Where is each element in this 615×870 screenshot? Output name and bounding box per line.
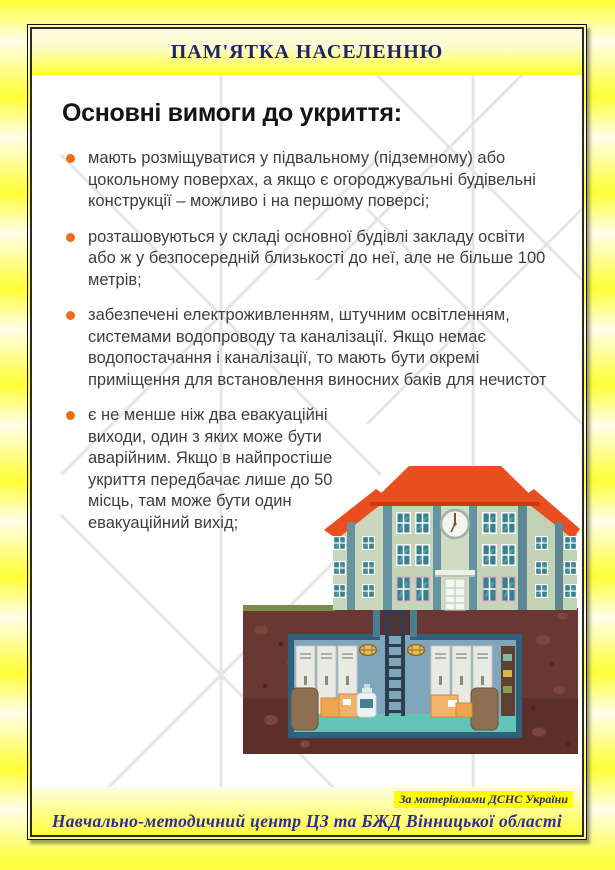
list-item-text: розташовуються у складі основної будівлі…: [88, 228, 545, 289]
header-band: ПАМ'ЯТКА НАСЕЛЕННЮ: [32, 29, 582, 75]
list-item: мають розміщуватися у підвальному (підзе…: [62, 148, 554, 213]
bullet-dot-icon: [66, 154, 75, 163]
poster-card-inner: ПАМ'ЯТКА НАСЕЛЕННЮ: [30, 27, 584, 837]
list-item: забезпечені електроживленням, штучним ос…: [62, 305, 554, 391]
content-area: Основні вимоги до укриття: мають розміщу…: [32, 75, 582, 787]
footer-band: За матеріалами ДСНС України Навчально-ме…: [32, 787, 582, 835]
poster-card: ПАМ'ЯТКА НАСЕЛЕННЮ: [27, 24, 587, 840]
school-building-illustration: [243, 458, 580, 760]
header-title: ПАМ'ЯТКА НАСЕЛЕННЮ: [171, 41, 444, 64]
list-item: розташовуються у складі основної будівлі…: [62, 227, 554, 292]
list-item-text: мають розміщуватися у підвальному (підзе…: [88, 149, 536, 210]
list-item-text: забезпечені електроживленням, штучним ос…: [88, 306, 547, 389]
content-title: Основні вимоги до укриття:: [62, 99, 554, 128]
footer-organization: Навчально-методичний центр ЦЗ та БЖД Він…: [32, 811, 582, 832]
bullet-dot-icon: [66, 411, 75, 420]
poster-page: ПАМ'ЯТКА НАСЕЛЕННЮ: [0, 0, 615, 870]
footer-source-credit: За матеріалами ДСНС України: [394, 791, 573, 808]
bullet-dot-icon: [66, 311, 75, 320]
bullet-dot-icon: [66, 233, 75, 242]
